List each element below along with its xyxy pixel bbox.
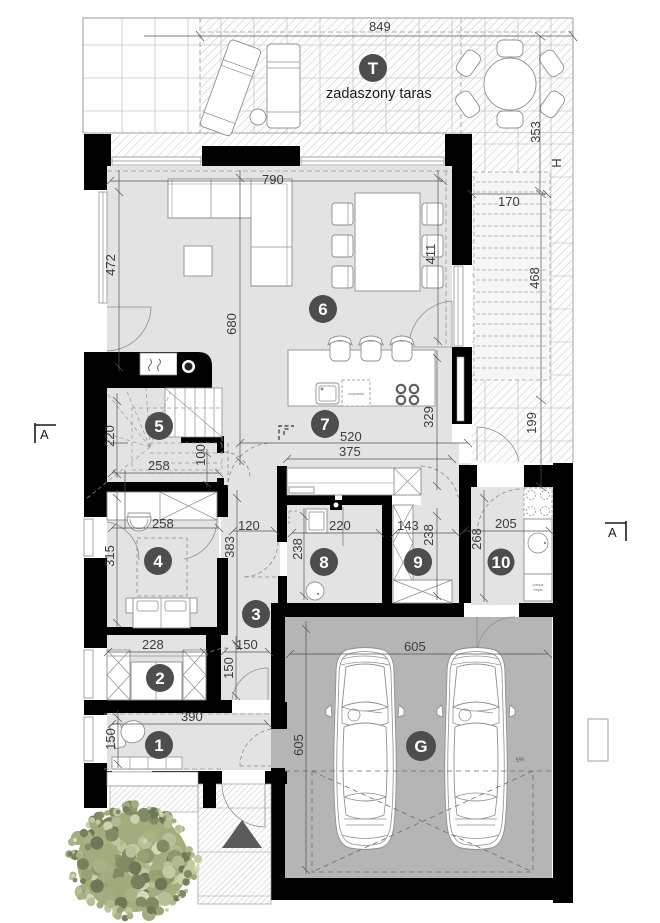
svg-text:468: 468 — [527, 267, 542, 289]
svg-text:100: 100 — [193, 444, 208, 466]
svg-text:390: 390 — [181, 709, 203, 724]
svg-text:6: 6 — [318, 300, 327, 319]
svg-text:238: 238 — [421, 524, 436, 546]
svg-text:605: 605 — [404, 639, 426, 654]
svg-text:605: 605 — [291, 734, 306, 756]
svg-text:9: 9 — [413, 553, 422, 572]
svg-text:143: 143 — [397, 518, 419, 533]
svg-text:T: T — [368, 59, 379, 78]
svg-text:A: A — [40, 427, 49, 442]
svg-text:199: 199 — [524, 412, 539, 434]
svg-text:472: 472 — [103, 254, 118, 276]
svg-text:pompa: pompa — [533, 583, 544, 587]
svg-text:A: A — [608, 525, 617, 540]
svg-text:329: 329 — [421, 406, 436, 428]
svg-text:ciepła: ciepła — [533, 588, 542, 592]
svg-text:383: 383 — [222, 536, 237, 558]
svg-text:258: 258 — [152, 516, 174, 531]
svg-text:150: 150 — [221, 657, 236, 679]
svg-text:220: 220 — [329, 518, 351, 533]
svg-text:1: 1 — [154, 736, 163, 755]
svg-text:790: 790 — [262, 172, 284, 187]
svg-text:238: 238 — [290, 538, 305, 560]
svg-text:680: 680 — [224, 313, 239, 335]
svg-text:7: 7 — [320, 415, 329, 434]
svg-text:849: 849 — [369, 19, 391, 34]
svg-text:228: 228 — [142, 637, 164, 652]
svg-text:10: 10 — [492, 553, 511, 572]
svg-text:zmywarka: zmywarka — [348, 392, 364, 396]
svg-text:G: G — [414, 737, 427, 756]
svg-text:315: 315 — [102, 545, 117, 567]
svg-text:220: 220 — [102, 425, 117, 447]
svg-text:150: 150 — [103, 728, 118, 750]
svg-text:4: 4 — [153, 552, 163, 571]
svg-text:5: 5 — [154, 417, 163, 436]
svg-text:520: 520 — [340, 429, 362, 444]
svg-text:170: 170 — [498, 194, 520, 209]
svg-text:zadaszony taras: zadaszony taras — [326, 86, 432, 102]
svg-text:375: 375 — [339, 444, 361, 459]
svg-text:H: H — [549, 158, 564, 167]
svg-text:353: 353 — [528, 121, 543, 143]
svg-text:150: 150 — [236, 637, 258, 652]
svg-text:268: 268 — [469, 528, 484, 550]
svg-text:120: 120 — [238, 518, 260, 533]
svg-text:205: 205 — [495, 516, 517, 531]
svg-text:3: 3 — [251, 605, 260, 624]
svg-text:411: 411 — [423, 244, 438, 265]
svg-text:8: 8 — [319, 553, 328, 572]
svg-text:258: 258 — [148, 458, 170, 473]
svg-text:2: 2 — [155, 669, 164, 688]
